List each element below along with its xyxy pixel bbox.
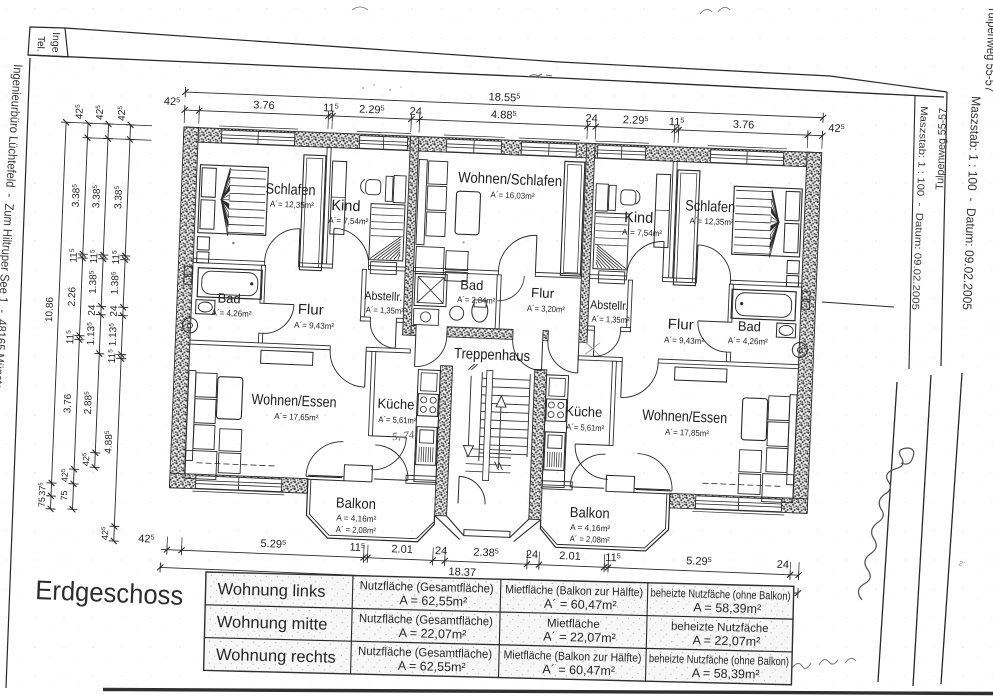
svg-text:Wohnung mitte: Wohnung mitte — [217, 613, 328, 634]
svg-text:A´= 16,03m²: A´= 16,03m² — [490, 189, 535, 201]
svg-text:10.86: 10.86 — [44, 296, 56, 322]
svg-text:24: 24 — [87, 304, 98, 316]
svg-text:A = 62,55m²: A = 62,55m² — [399, 593, 467, 609]
svg-text:Bad: Bad — [217, 291, 241, 307]
svg-text:2.01: 2.01 — [391, 543, 413, 556]
svg-text:Küche: Küche — [377, 395, 415, 412]
svg-text:A´ = 60,47m²: A´ = 60,47m² — [542, 662, 615, 678]
svg-text:A´= 17,65m²: A´= 17,65m² — [274, 411, 319, 423]
svg-text:A = 22,07m²: A = 22,07m² — [692, 633, 760, 649]
svg-text:24: 24 — [409, 106, 422, 118]
svg-text:2.01: 2.01 — [559, 550, 581, 563]
svg-text:Balkon: Balkon — [336, 495, 377, 513]
svg-text:5, 74: 5, 74 — [392, 429, 416, 443]
svg-text:Schlafen: Schlafen — [685, 197, 736, 216]
svg-text:Flur: Flur — [667, 317, 694, 334]
svg-text:Erdgeschoss: Erdgeschoss — [35, 575, 184, 611]
svg-text:75: 75 — [37, 497, 47, 507]
svg-text:A´= 1,35m²: A´= 1,35m² — [366, 304, 405, 316]
svg-text:A´= 7,54m²: A´= 7,54m² — [622, 227, 663, 239]
svg-text:Abstellr.: Abstellr. — [590, 298, 629, 314]
svg-text:Küche: Küche — [565, 403, 603, 420]
svg-text:Balkon: Balkon — [569, 505, 610, 523]
svg-text:24: 24 — [776, 559, 789, 571]
svg-text:A´= 5,61m²: A´= 5,61m² — [378, 414, 417, 426]
svg-text:A´= 17,85m²: A´= 17,85m² — [665, 427, 710, 439]
svg-text:18.555: 18.555 — [488, 91, 520, 104]
svg-text:A = 22,07m²: A = 22,07m² — [399, 626, 467, 642]
svg-text:Flur: Flur — [297, 302, 324, 319]
svg-text:A´= 1,35m²: A´= 1,35m² — [591, 314, 630, 326]
svg-text:3.76: 3.76 — [62, 393, 74, 413]
svg-text:3.76: 3.76 — [253, 99, 275, 112]
svg-text:Inge: Inge — [49, 32, 62, 53]
svg-text:A = 58,39m²: A = 58,39m² — [693, 600, 761, 616]
svg-text:A´= 9,43m²: A´= 9,43m² — [294, 320, 335, 332]
svg-text:Wohnen/Essen: Wohnen/Essen — [642, 407, 728, 427]
svg-text:Bad: Bad — [460, 277, 484, 293]
svg-text:A = 58,39m²: A = 58,39m² — [692, 666, 760, 682]
svg-text:75: 75 — [59, 490, 69, 500]
svg-text:Abstellr.: Abstellr. — [364, 288, 403, 304]
svg-text:A´ = 22,07m²: A´ = 22,07m² — [543, 630, 616, 646]
svg-text:A´= 7,54m²: A´= 7,54m² — [328, 215, 369, 227]
svg-text:24: 24 — [435, 545, 448, 557]
svg-text:24: 24 — [109, 305, 120, 317]
svg-text:18.37: 18.37 — [448, 566, 476, 579]
svg-text:Flur: Flur — [531, 285, 555, 301]
svg-text:A = 62,55m²: A = 62,55m² — [398, 659, 466, 675]
svg-text:A´= 3,20m²: A´= 3,20m² — [527, 303, 566, 315]
svg-text:Kind: Kind — [624, 209, 654, 227]
svg-text:A´ = 60,47m²: A´ = 60,47m² — [544, 597, 617, 613]
svg-text:Wohnung links: Wohnung links — [217, 580, 325, 601]
svg-text:A´= 4,26m²: A´= 4,26m² — [728, 335, 769, 347]
svg-text:A´= 5,61m²: A´= 5,61m² — [566, 422, 605, 434]
svg-text:A´ = 2,08m²: A´ = 2,08m² — [570, 533, 611, 545]
svg-text:A´= 2,84m²: A´= 2,84m² — [457, 294, 496, 306]
svg-text:A = 4,16m²: A = 4,16m² — [570, 522, 611, 534]
svg-text:2.26: 2.26 — [67, 286, 79, 306]
svg-text:Tel.: Tel. — [34, 36, 46, 52]
svg-text:A´= 12,35m²: A´= 12,35m² — [270, 199, 315, 211]
svg-text:Schlafen: Schlafen — [265, 180, 316, 199]
svg-text:Wohnen/Essen: Wohnen/Essen — [251, 391, 337, 411]
svg-text:A´= 12,35m²: A´= 12,35m² — [689, 215, 734, 227]
svg-text:Kind: Kind — [331, 197, 361, 215]
svg-text:Wohnung rechts: Wohnung rechts — [216, 646, 336, 667]
svg-text:24: 24 — [585, 113, 598, 125]
svg-text:Treppenhaus: Treppenhaus — [454, 345, 531, 365]
svg-text:24: 24 — [526, 549, 539, 561]
svg-text:Bad: Bad — [738, 318, 762, 334]
svg-text:A´= 9,43m²: A´= 9,43m² — [664, 335, 705, 347]
svg-text:A´= 4,26m²: A´= 4,26m² — [211, 307, 252, 319]
svg-text:A = 4,16m²: A = 4,16m² — [336, 512, 377, 524]
svg-text:A´ = 2,08m²: A´ = 2,08m² — [336, 524, 377, 536]
svg-text:Mietfläche: Mietfläche — [547, 617, 600, 631]
svg-text:3.76: 3.76 — [733, 119, 755, 132]
